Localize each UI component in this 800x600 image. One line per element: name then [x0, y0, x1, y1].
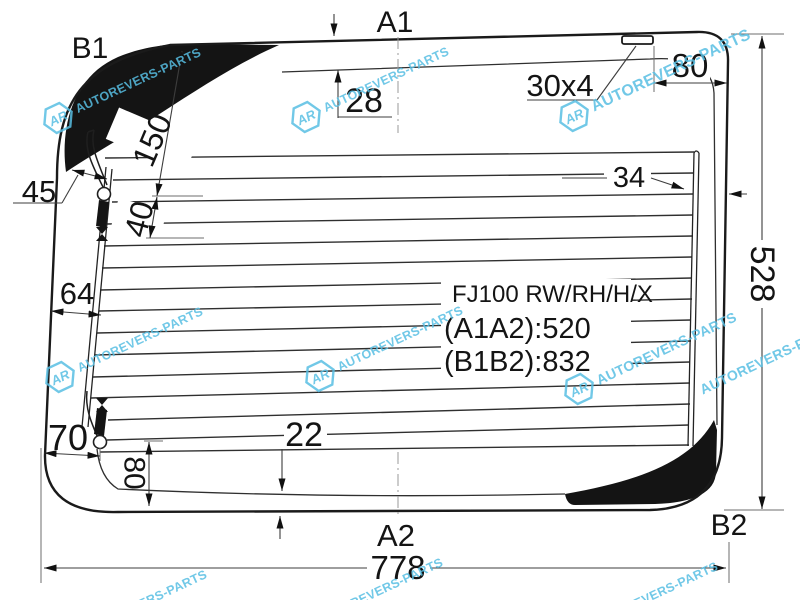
- label-a1: A1: [377, 6, 414, 39]
- watermark-logo-text: AR: [308, 365, 333, 387]
- technical-drawing: 28 30x4 80 34 528 778 45 150: [0, 0, 800, 600]
- watermark-logo-text: AR: [294, 106, 319, 128]
- label-b1: B1: [72, 32, 109, 65]
- diagonal-b1b2: (B1B2):832: [444, 346, 591, 378]
- watermark-text: AUTOREVERS-PARTS: [79, 567, 209, 600]
- dim-45-value: 45: [22, 174, 56, 209]
- parts-diagram-page: 28 30x4 80 34 528 778 45 150: [0, 0, 800, 600]
- watermark: AUTOREVERS-PARTS: [556, 554, 723, 600]
- dim-70-value: 70: [48, 417, 88, 458]
- dimension-34: 34: [562, 162, 747, 194]
- watermark: AR AUTOREVERS-PARTS: [41, 299, 208, 395]
- label-a2: A2: [377, 518, 415, 553]
- antenna-connector: [622, 36, 653, 44]
- watermark-text: AUTOREVERS-PARTS: [590, 559, 720, 600]
- dim-22-value: 22: [285, 416, 323, 454]
- watermark-text: AUTOREVERS-PARTS: [321, 44, 451, 115]
- dimension-528: 528: [724, 34, 784, 510]
- corner-tint-b2: [565, 420, 717, 505]
- dim-34-value: 34: [613, 162, 645, 194]
- watermark: AR AUTOREVERS-PARTS: [287, 39, 454, 135]
- dim-80-left-value: 80: [118, 456, 151, 489]
- dimension-45: 45: [13, 170, 107, 209]
- dim-30x4-value: 30x4: [526, 68, 593, 103]
- watermark-logo-text: AR: [567, 378, 592, 400]
- dimension-22: 22: [280, 416, 323, 539]
- wiper-pivot-lower: [87, 391, 108, 449]
- ceramic-band-boundary: [97, 59, 717, 496]
- part-code: FJ100 RW/RH/H/X: [452, 281, 653, 308]
- dim-528-value: 528: [743, 246, 781, 303]
- dim-64-value: 64: [60, 276, 94, 311]
- diagonal-a1a2: (A1A2):520: [444, 313, 591, 345]
- watermark-logo-text: AR: [562, 105, 587, 127]
- label-b2: B2: [711, 509, 748, 542]
- dimension-64: 64: [51, 276, 101, 315]
- watermark-logo-text: AR: [48, 366, 73, 388]
